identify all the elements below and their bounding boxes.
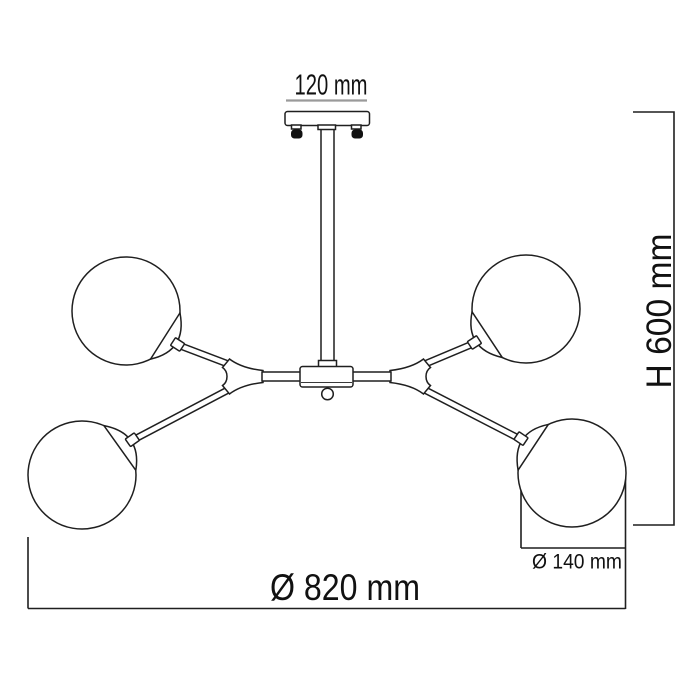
hub-finial bbox=[322, 388, 334, 400]
central-hub bbox=[300, 367, 353, 388]
drawing-canvas: 120 mm H 600 mm Ø 140 mm Ø 820 mm bbox=[0, 0, 700, 700]
mounting-screw-left bbox=[291, 130, 303, 139]
globe-upper-left bbox=[51, 236, 211, 392]
globe-diameter-label: Ø 140 mm bbox=[532, 550, 622, 574]
globe-lower-left bbox=[7, 392, 168, 550]
y-splitter-right bbox=[390, 359, 431, 394]
fixture-technical-drawing: 120 mm H 600 mm Ø 140 mm Ø 820 mm bbox=[0, 0, 700, 700]
arm-tube-right bbox=[351, 372, 391, 381]
globe-upper-right bbox=[440, 234, 600, 390]
plate-foot-right bbox=[352, 125, 362, 129]
y-splitter-left bbox=[223, 359, 264, 394]
plate-foot-center bbox=[318, 125, 336, 130]
dimension-height: H 600 mm bbox=[633, 112, 679, 525]
height-label: H 600 mm bbox=[640, 234, 679, 389]
dimension-canopy-width: 120 mm bbox=[286, 70, 368, 102]
canopy-width-label: 120 mm bbox=[295, 70, 368, 102]
stem bbox=[321, 128, 334, 364]
globe-lower-right bbox=[486, 391, 647, 548]
arm-tube-left bbox=[262, 372, 302, 381]
total-diameter-label: Ø 820 mm bbox=[270, 567, 420, 608]
plate-foot-left bbox=[292, 125, 302, 129]
mounting-screw-right bbox=[352, 130, 364, 139]
ceiling-plate bbox=[285, 112, 370, 126]
